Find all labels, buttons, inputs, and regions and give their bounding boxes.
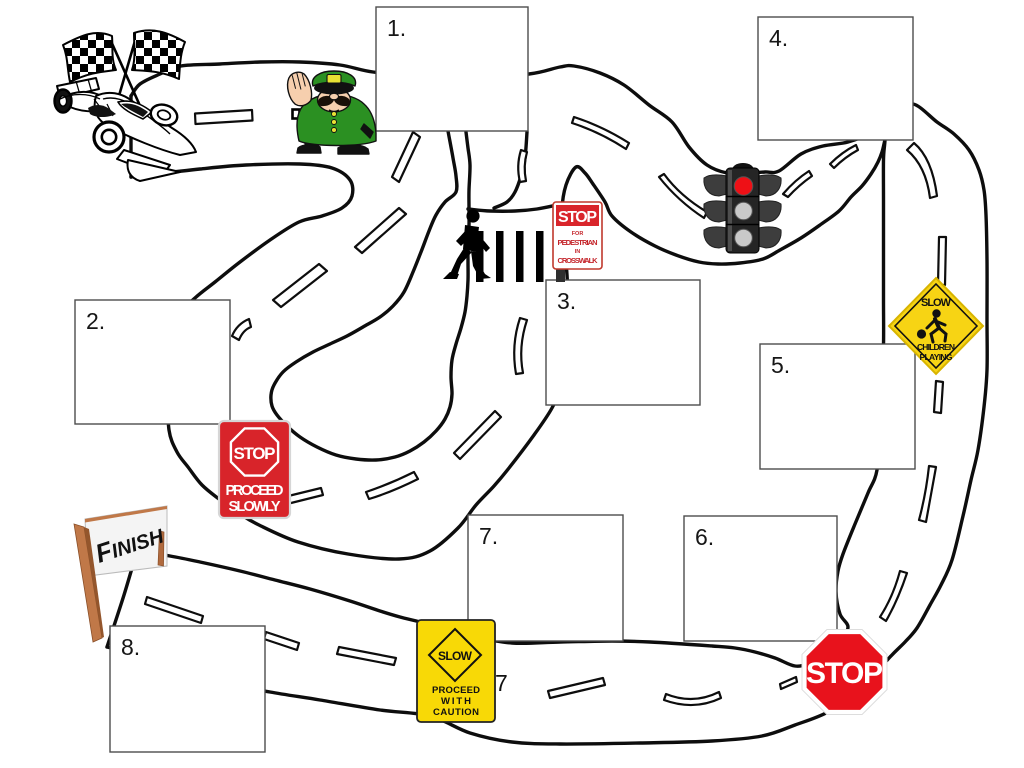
svg-text:7: 7 — [495, 670, 508, 696]
svg-text:PROCEED: PROCEED — [226, 483, 284, 499]
svg-text:STOP: STOP — [806, 657, 883, 690]
svg-text:STOP: STOP — [558, 209, 597, 226]
svg-text:CHILDREN: CHILDREN — [917, 342, 955, 352]
svg-text:PEDESTRIAN: PEDESTRIAN — [558, 238, 598, 247]
svg-text:WITH: WITH — [441, 696, 471, 707]
svg-text:5.: 5. — [771, 352, 790, 378]
svg-text:CROSSWALK: CROSSWALK — [558, 256, 599, 265]
svg-text:IN: IN — [575, 249, 581, 255]
svg-text:FOR: FOR — [572, 231, 584, 237]
svg-text:7.: 7. — [479, 523, 498, 549]
svg-text:SLOW: SLOW — [438, 649, 473, 663]
svg-text:3.: 3. — [557, 288, 576, 314]
svg-text:SLOW: SLOW — [921, 297, 952, 309]
svg-text:PROCEED: PROCEED — [432, 685, 480, 696]
svg-text:4.: 4. — [769, 25, 788, 51]
svg-text:6.: 6. — [695, 524, 714, 550]
svg-text:STOP: STOP — [234, 444, 276, 463]
svg-text:CAUTION: CAUTION — [433, 707, 479, 718]
svg-text:PLAYING: PLAYING — [920, 352, 953, 362]
svg-text:8.: 8. — [121, 634, 140, 660]
svg-text:2.: 2. — [86, 308, 105, 334]
svg-text:SLOWLY: SLOWLY — [229, 499, 281, 515]
svg-text:1.: 1. — [387, 15, 406, 41]
